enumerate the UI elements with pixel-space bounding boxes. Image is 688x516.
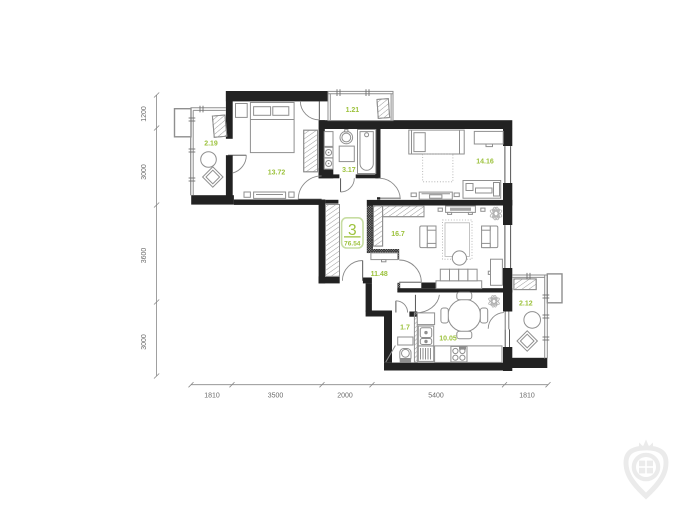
svg-text:2000: 2000 <box>337 393 353 400</box>
svg-text:3500: 3500 <box>268 393 284 400</box>
svg-text:3000: 3000 <box>141 334 148 350</box>
svg-text:2.19: 2.19 <box>204 141 218 148</box>
svg-text:11.48: 11.48 <box>371 271 388 278</box>
svg-text:16.7: 16.7 <box>391 231 405 238</box>
svg-text:3600: 3600 <box>141 248 148 264</box>
svg-text:1810: 1810 <box>204 393 220 400</box>
svg-text:1.21: 1.21 <box>346 107 360 114</box>
svg-text:1.7: 1.7 <box>400 325 410 332</box>
svg-text:3.17: 3.17 <box>342 167 356 174</box>
svg-text:1200: 1200 <box>141 106 148 122</box>
svg-text:10.05: 10.05 <box>439 336 457 343</box>
svg-text:14.16: 14.16 <box>476 159 494 166</box>
svg-text:76.54: 76.54 <box>344 241 361 248</box>
svg-text:5400: 5400 <box>428 393 444 400</box>
svg-text:2.12: 2.12 <box>519 301 533 308</box>
svg-text:3000: 3000 <box>141 164 148 180</box>
svg-text:1810: 1810 <box>519 393 535 400</box>
svg-text:13.72: 13.72 <box>268 169 286 176</box>
